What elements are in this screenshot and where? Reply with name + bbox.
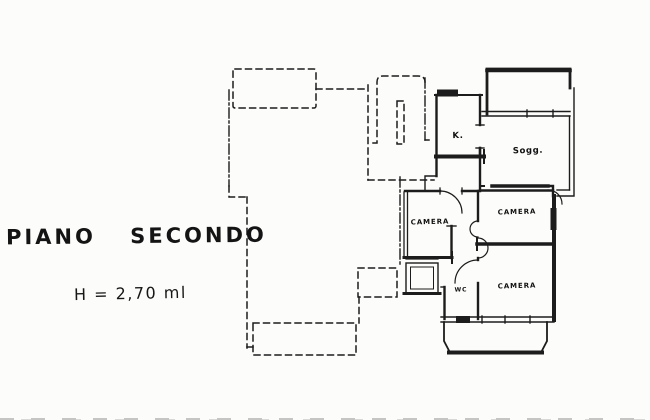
hall-door-arc <box>440 191 462 213</box>
balcony-bottom <box>444 322 547 353</box>
apartment-walls <box>404 88 574 323</box>
stair-flight-dashed <box>397 101 404 144</box>
lower-floor-dashed-outline <box>229 69 397 355</box>
room-label-kitchen: K. <box>452 131 463 141</box>
floor-plan-sheet: PIANO SECONDO H = 2,70 ml K. Sogg. CAMER… <box>0 0 650 420</box>
floor-title: PIANO SECONDO <box>6 223 267 250</box>
kitchen-window-hatch <box>437 90 458 97</box>
stairwell-dashed <box>368 76 434 180</box>
room-label-bedroom-bottom-right: CAMERA <box>498 281 537 290</box>
room-label-living-room: Sogg. <box>513 146 544 157</box>
dashed-terrace-mid <box>358 268 397 297</box>
bottom-sill-hatch <box>456 316 470 323</box>
scan-artifact-bottom-edge <box>0 414 650 420</box>
balcony-top <box>482 69 570 117</box>
room-label-bedroom-left: CAMERA <box>411 217 450 226</box>
room-label-wc: WC <box>454 286 467 293</box>
floor-plan-drawing <box>0 0 650 420</box>
dashed-terrace-top-left <box>233 69 316 108</box>
wc-door-arc <box>455 260 478 283</box>
right-wall-window-hatch <box>551 208 557 230</box>
dashed-terrace-bottom <box>253 323 356 355</box>
ceiling-height-note: H = 2,70 ml <box>74 283 187 304</box>
room-label-bedroom-top-right: CAMERA <box>498 207 537 216</box>
door-arcs <box>440 190 562 283</box>
bedroom-door-bump-left <box>470 221 478 237</box>
bedroom-door-bump-right <box>478 238 488 258</box>
